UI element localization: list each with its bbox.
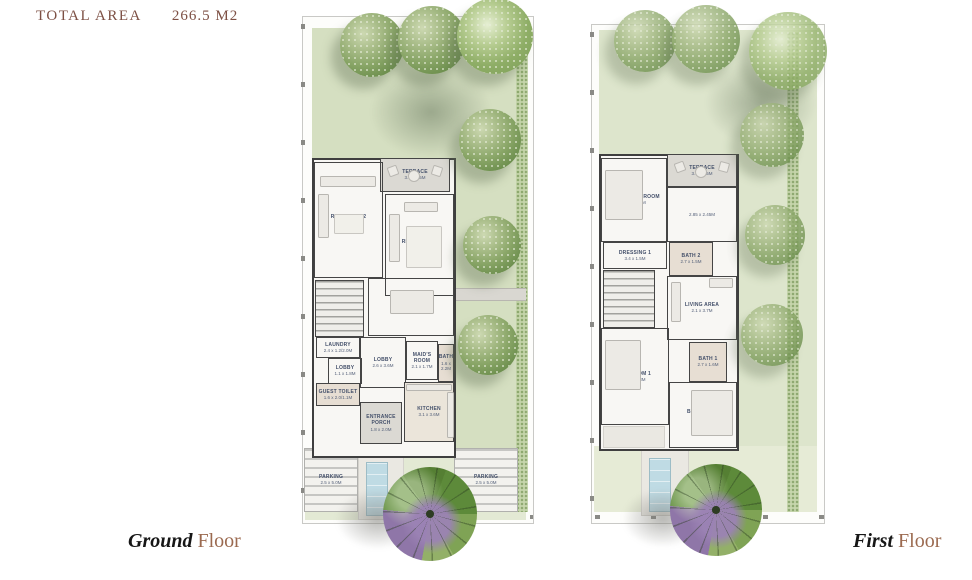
hedge-strip: [516, 30, 528, 512]
ground-floor-plan: PARKING2.5 x 5.0M PARKING2.5 x 5.0M TERR…: [302, 16, 534, 524]
total-area-header: TOTAL AREA266.5 M2: [36, 8, 238, 25]
staircase: [315, 280, 364, 337]
terrace-table: [408, 170, 420, 182]
room-dims: 3.1 x 3.6M: [417, 412, 441, 417]
tree-icon: [672, 5, 740, 73]
tree-icon: [458, 315, 518, 375]
room-dims: 1.1 x 1.8M: [334, 371, 355, 376]
room-dims: 1.6 x 2.0/1.1M: [319, 395, 358, 400]
room-bath-2: BATH 22.7 x 1.5M: [669, 242, 713, 276]
tree-icon: [614, 10, 676, 72]
garden-lawn: [737, 154, 817, 450]
ground-floor-caption: GroundFloor: [128, 530, 241, 553]
caption-name: First: [853, 530, 893, 552]
room-bath: BATH1.6 x 2.2M: [438, 344, 454, 382]
room-entrance-porch: ENTRANCE PORCH1.8 x 2.0M: [360, 402, 402, 444]
room-lobby-small: LOBBY1.1 x 1.8M: [328, 358, 362, 384]
room-name: ENTRANCE PORCH: [361, 414, 401, 427]
total-area-value: 266.5 M2: [172, 8, 238, 24]
room-name: MAID'S ROOM: [407, 352, 437, 365]
rug: [406, 226, 442, 268]
tree-icon: [741, 304, 803, 366]
room-name: LOBBY: [372, 357, 393, 363]
dining-table: [390, 290, 434, 314]
sofa: [404, 202, 438, 212]
room-dims: 2.1 x 1.7M: [407, 364, 437, 369]
bed: [605, 170, 643, 220]
tree-icon: [398, 6, 466, 74]
room-dims: 2.4 x 1.2/2.0M: [324, 348, 353, 353]
room-bath-1: BATH 12.7 x 1.6M: [689, 342, 727, 382]
ornamental-tree-icon: [383, 467, 477, 561]
first-floor-caption: FirstFloor: [853, 530, 941, 553]
room-dims: 2.5 x 5.0M: [319, 480, 343, 485]
tree-icon: [463, 216, 521, 274]
palm-tree-icon: [749, 12, 827, 90]
boundary-columns-icon: [590, 32, 594, 512]
bed: [605, 340, 641, 390]
bed: [691, 390, 733, 436]
lower-landing: [603, 426, 665, 448]
sofa: [318, 194, 329, 238]
garden-lawn: [452, 156, 526, 458]
room-family-seating: 2.85 x 2.45M: [667, 187, 737, 242]
boundary-columns-icon: [301, 24, 305, 512]
room-dims: 2.6 x 3.6M: [372, 363, 393, 368]
palm-tree-icon: [457, 0, 533, 74]
kitchen-counter: [447, 392, 454, 438]
tree-icon: [459, 109, 521, 171]
room-dims: 2.5 x 5.0M: [474, 480, 498, 485]
room-dims: 2.7 x 1.6M: [697, 362, 718, 367]
ornamental-tree-icon: [670, 464, 762, 556]
room-name: DRESSING 1: [619, 250, 651, 256]
tree-icon: [340, 13, 404, 77]
sofa: [389, 214, 400, 262]
room-lobby: LOBBY2.6 x 3.6M: [360, 337, 406, 388]
room-dims: 1.6 x 2.2M: [439, 361, 453, 372]
terrace-table: [695, 166, 707, 178]
sofa: [671, 282, 681, 322]
room-dims: 2.7 x 1.5M: [680, 259, 701, 264]
tree-icon: [745, 205, 805, 265]
caption-name: Ground: [128, 530, 192, 552]
room-dims: 1.8 x 2.0M: [361, 427, 401, 432]
first-floor-plan: TERRACE3.5 x 1.5M MASTER BEDROOM3.85 x 4…: [591, 24, 825, 524]
sofa: [320, 176, 376, 187]
room-name: LAUNDRY: [324, 342, 353, 348]
room-name: GUEST TOILET: [319, 389, 358, 395]
room-name: BATH: [439, 354, 453, 360]
room-dims: 2.85 x 2.45M: [689, 212, 715, 217]
desk: [709, 278, 733, 288]
room-laundry: LAUNDRY2.4 x 1.2/2.0M: [316, 337, 360, 358]
room-dressing-1: DRESSING 13.4 x 1.5M: [603, 242, 667, 269]
caption-floor-word: Floor: [898, 530, 941, 552]
coffee-table: [334, 214, 364, 234]
side-walkway: [452, 288, 526, 301]
total-area-label: TOTAL AREA: [36, 8, 142, 24]
caption-floor-word: Floor: [197, 530, 240, 552]
room-maids-room: MAID'S ROOM2.1 x 1.7M: [406, 341, 438, 380]
kitchen-counter: [406, 384, 452, 391]
staircase: [603, 270, 655, 328]
room-dims: 3.4 x 1.5M: [619, 256, 651, 261]
room-dims: 2.1 x 3.7M: [685, 308, 719, 313]
tree-icon: [740, 103, 804, 167]
room-guest-toilet: GUEST TOILET1.6 x 2.0/1.1M: [316, 383, 360, 406]
